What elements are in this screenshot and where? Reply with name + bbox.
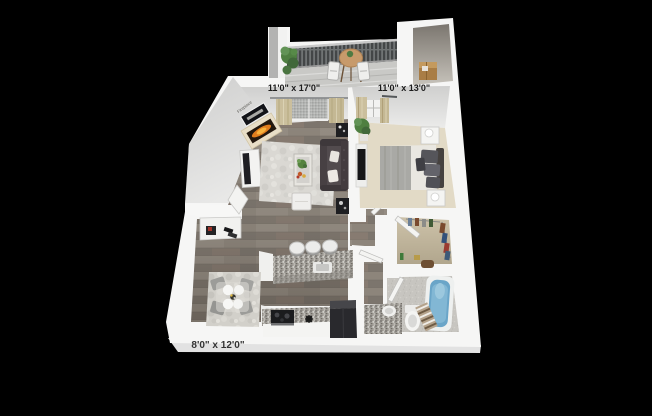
svg-text:8'0" x 12'0": 8'0" x 12'0"	[191, 340, 244, 351]
svg-text:11'0" x 17'0": 11'0" x 17'0"	[268, 83, 320, 93]
svg-text:11'0" x 13'0": 11'0" x 13'0"	[378, 83, 430, 93]
